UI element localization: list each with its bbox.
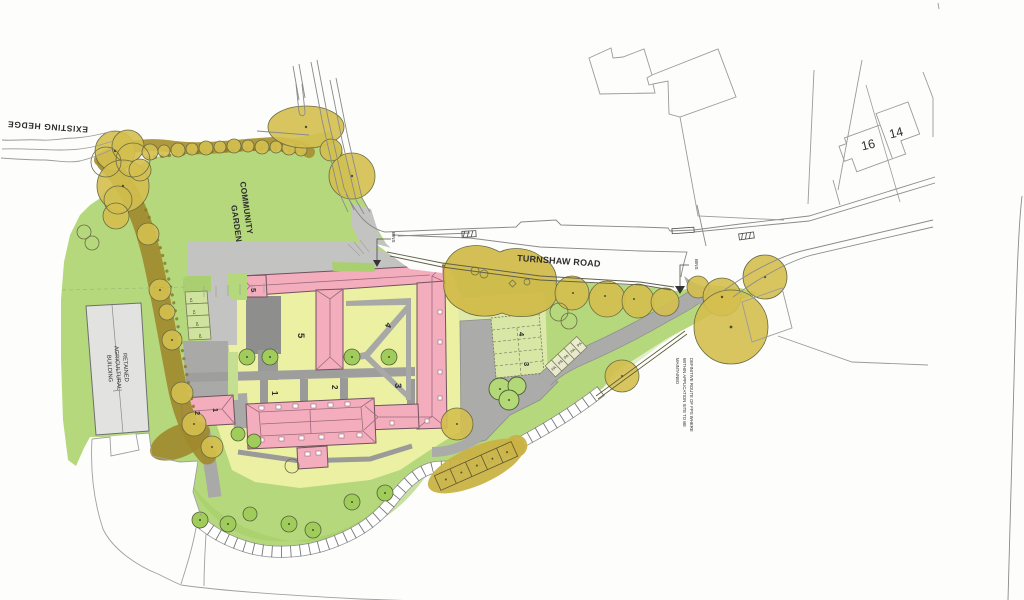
svg-text:3: 3 bbox=[522, 362, 531, 366]
svg-text:WITHIN APPLICATION SITE TO BE: WITHIN APPLICATION SITE TO BE bbox=[682, 358, 687, 427]
svg-text:3: 3 bbox=[392, 383, 403, 388]
svg-text:5: 5 bbox=[295, 333, 306, 339]
svg-text:1: 1 bbox=[270, 391, 279, 396]
svg-text:1: 1 bbox=[211, 408, 220, 412]
svg-text:MAINTAINED: MAINTAINED bbox=[675, 358, 680, 384]
svg-text:BINS: BINS bbox=[391, 232, 396, 243]
svg-text:2: 2 bbox=[193, 411, 202, 415]
svg-text:BINS: BINS bbox=[694, 259, 699, 270]
svg-text:DEFINITIVE ROUTE OF FPS WHERE: DEFINITIVE ROUTE OF FPS WHERE bbox=[689, 358, 694, 432]
svg-text:2: 2 bbox=[330, 385, 339, 390]
svg-text:5: 5 bbox=[249, 288, 258, 292]
